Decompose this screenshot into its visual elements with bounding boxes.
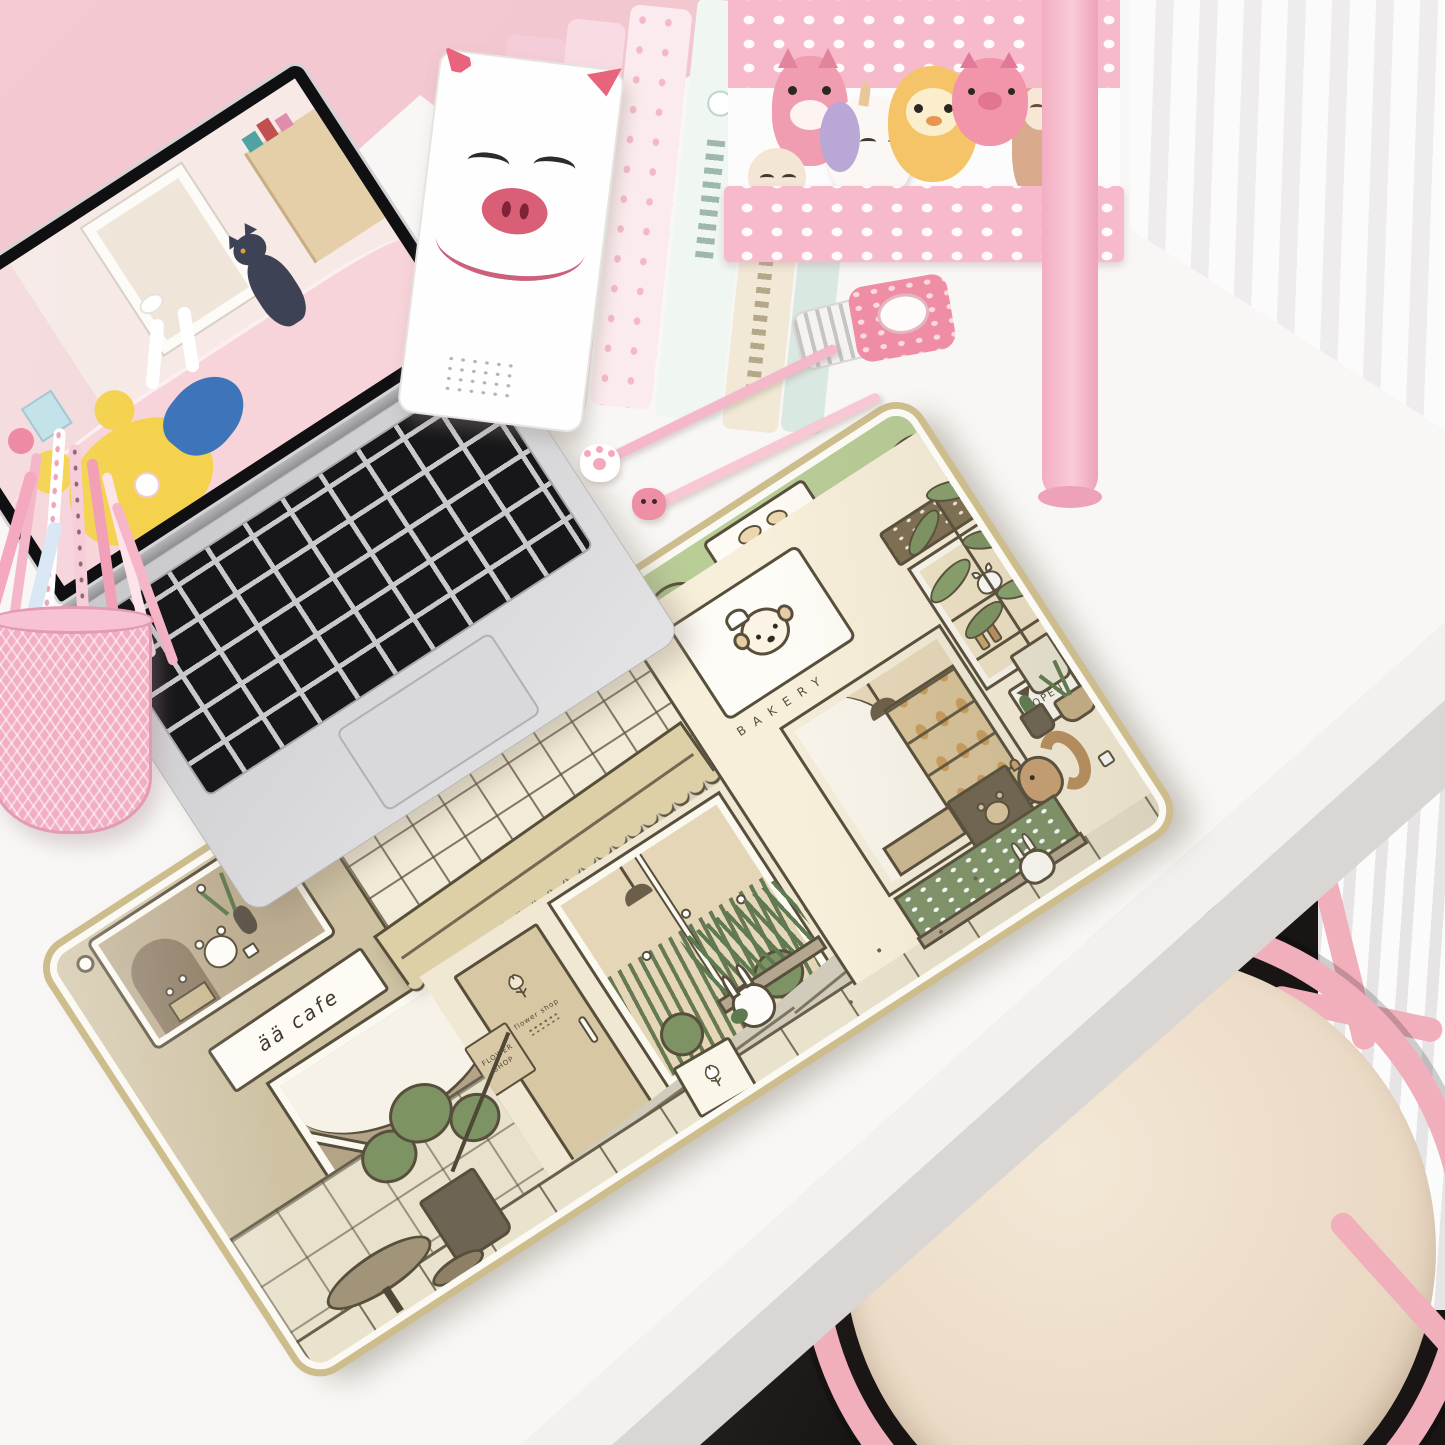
pig-ear-icon <box>442 47 479 81</box>
paw-toe <box>596 446 603 453</box>
toy-ear-icon <box>818 48 838 68</box>
desk-scene: ää cafe flower shop <box>0 0 1445 1445</box>
toy-ear-icon <box>960 52 978 68</box>
pen-cup <box>0 616 152 834</box>
tulip-icon <box>699 1059 731 1095</box>
spine-marks <box>695 139 725 260</box>
shelf-post-foot <box>1038 486 1102 508</box>
door-handle <box>577 1015 600 1045</box>
pig-eye-icon <box>466 150 510 175</box>
toy-eye <box>860 138 876 146</box>
paw-toe <box>584 450 591 457</box>
topper-eye <box>641 499 646 504</box>
cat-ear-pen-topper <box>136 474 158 496</box>
toy-ear-icon <box>1000 52 1018 68</box>
tulip-icon <box>501 968 537 1007</box>
toy-eye <box>914 104 923 113</box>
toy-eye <box>782 174 796 182</box>
washi-core <box>874 290 932 338</box>
flamingo-pen-topper <box>8 428 34 454</box>
spine-marks <box>746 259 774 390</box>
pig-smile <box>432 201 589 289</box>
paw-toe <box>608 450 615 457</box>
plant-sprig-icon <box>199 890 229 916</box>
cat-paw-pen-topper <box>580 444 620 482</box>
pig-eye-icon <box>532 154 576 179</box>
leaf-icon <box>959 595 1008 644</box>
unicorn-mane <box>820 102 860 172</box>
lamp-shade-icon <box>620 879 653 907</box>
bear-pen-topper <box>632 488 666 520</box>
pig-toy-snout <box>978 92 1002 110</box>
paw-pad <box>593 458 606 470</box>
toy-ear-icon <box>778 48 798 68</box>
toy-eye <box>968 88 975 95</box>
toy-eye <box>760 174 774 182</box>
cup-icon <box>242 942 260 960</box>
toy-eye <box>788 86 797 95</box>
duck-beak-icon <box>926 116 942 126</box>
pig-text-dots <box>441 353 516 403</box>
leaf-icon <box>903 505 946 560</box>
leaf-icon <box>924 553 977 610</box>
shelf-post <box>1042 0 1098 500</box>
toy-eye <box>822 86 831 95</box>
toy-eye <box>1008 88 1015 95</box>
topper-eye <box>652 499 657 504</box>
pig-toy <box>952 58 1028 146</box>
